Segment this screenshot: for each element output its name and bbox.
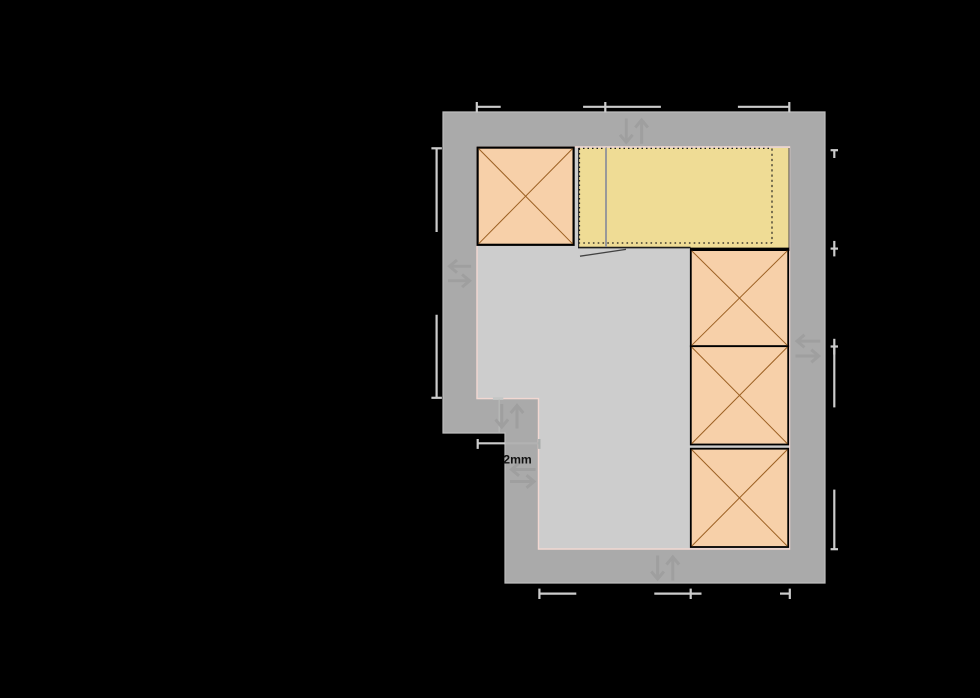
svg-text:2mm: 2mm [503,453,532,467]
